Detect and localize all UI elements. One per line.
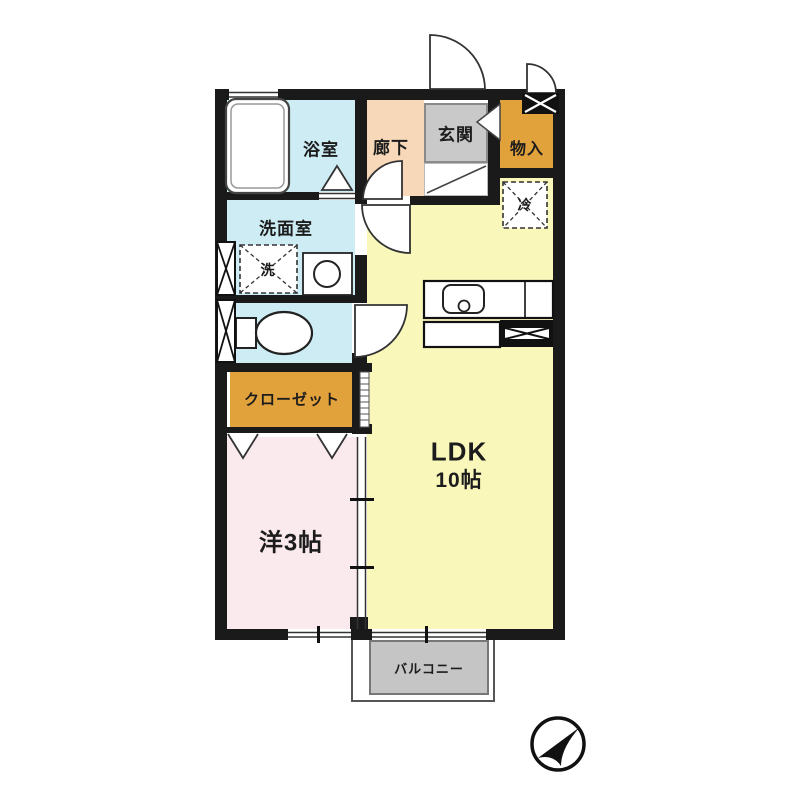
- floor-plan: 浴室 廊下 玄関 物入 冷 洗面室 洗 クローゼット 洋3帖 LDK 10帖 バ…: [0, 0, 800, 800]
- entrance-door: [430, 35, 485, 89]
- label-balcony: バルコニー: [394, 659, 464, 678]
- label-entrance: 玄関: [438, 121, 474, 146]
- label-ldk-size: 10帖: [435, 464, 482, 494]
- label-washroom: 洗面室: [259, 215, 313, 240]
- label-bathroom: 浴室: [303, 136, 339, 161]
- label-fridge: 冷: [518, 195, 533, 215]
- label-hallway: 廊下: [373, 134, 409, 159]
- label-ldk: LDK: [431, 437, 487, 468]
- label-washer: 洗: [261, 260, 276, 280]
- room-ldk: [367, 204, 553, 629]
- label-western-room: 洋3帖: [259, 523, 323, 558]
- meter-door: [527, 64, 556, 93]
- compass-icon: [532, 718, 584, 770]
- room-toilet: [234, 303, 352, 363]
- label-closet: クローゼット: [244, 389, 340, 410]
- entrance-step: [424, 163, 488, 196]
- label-storage: 物入: [510, 135, 544, 159]
